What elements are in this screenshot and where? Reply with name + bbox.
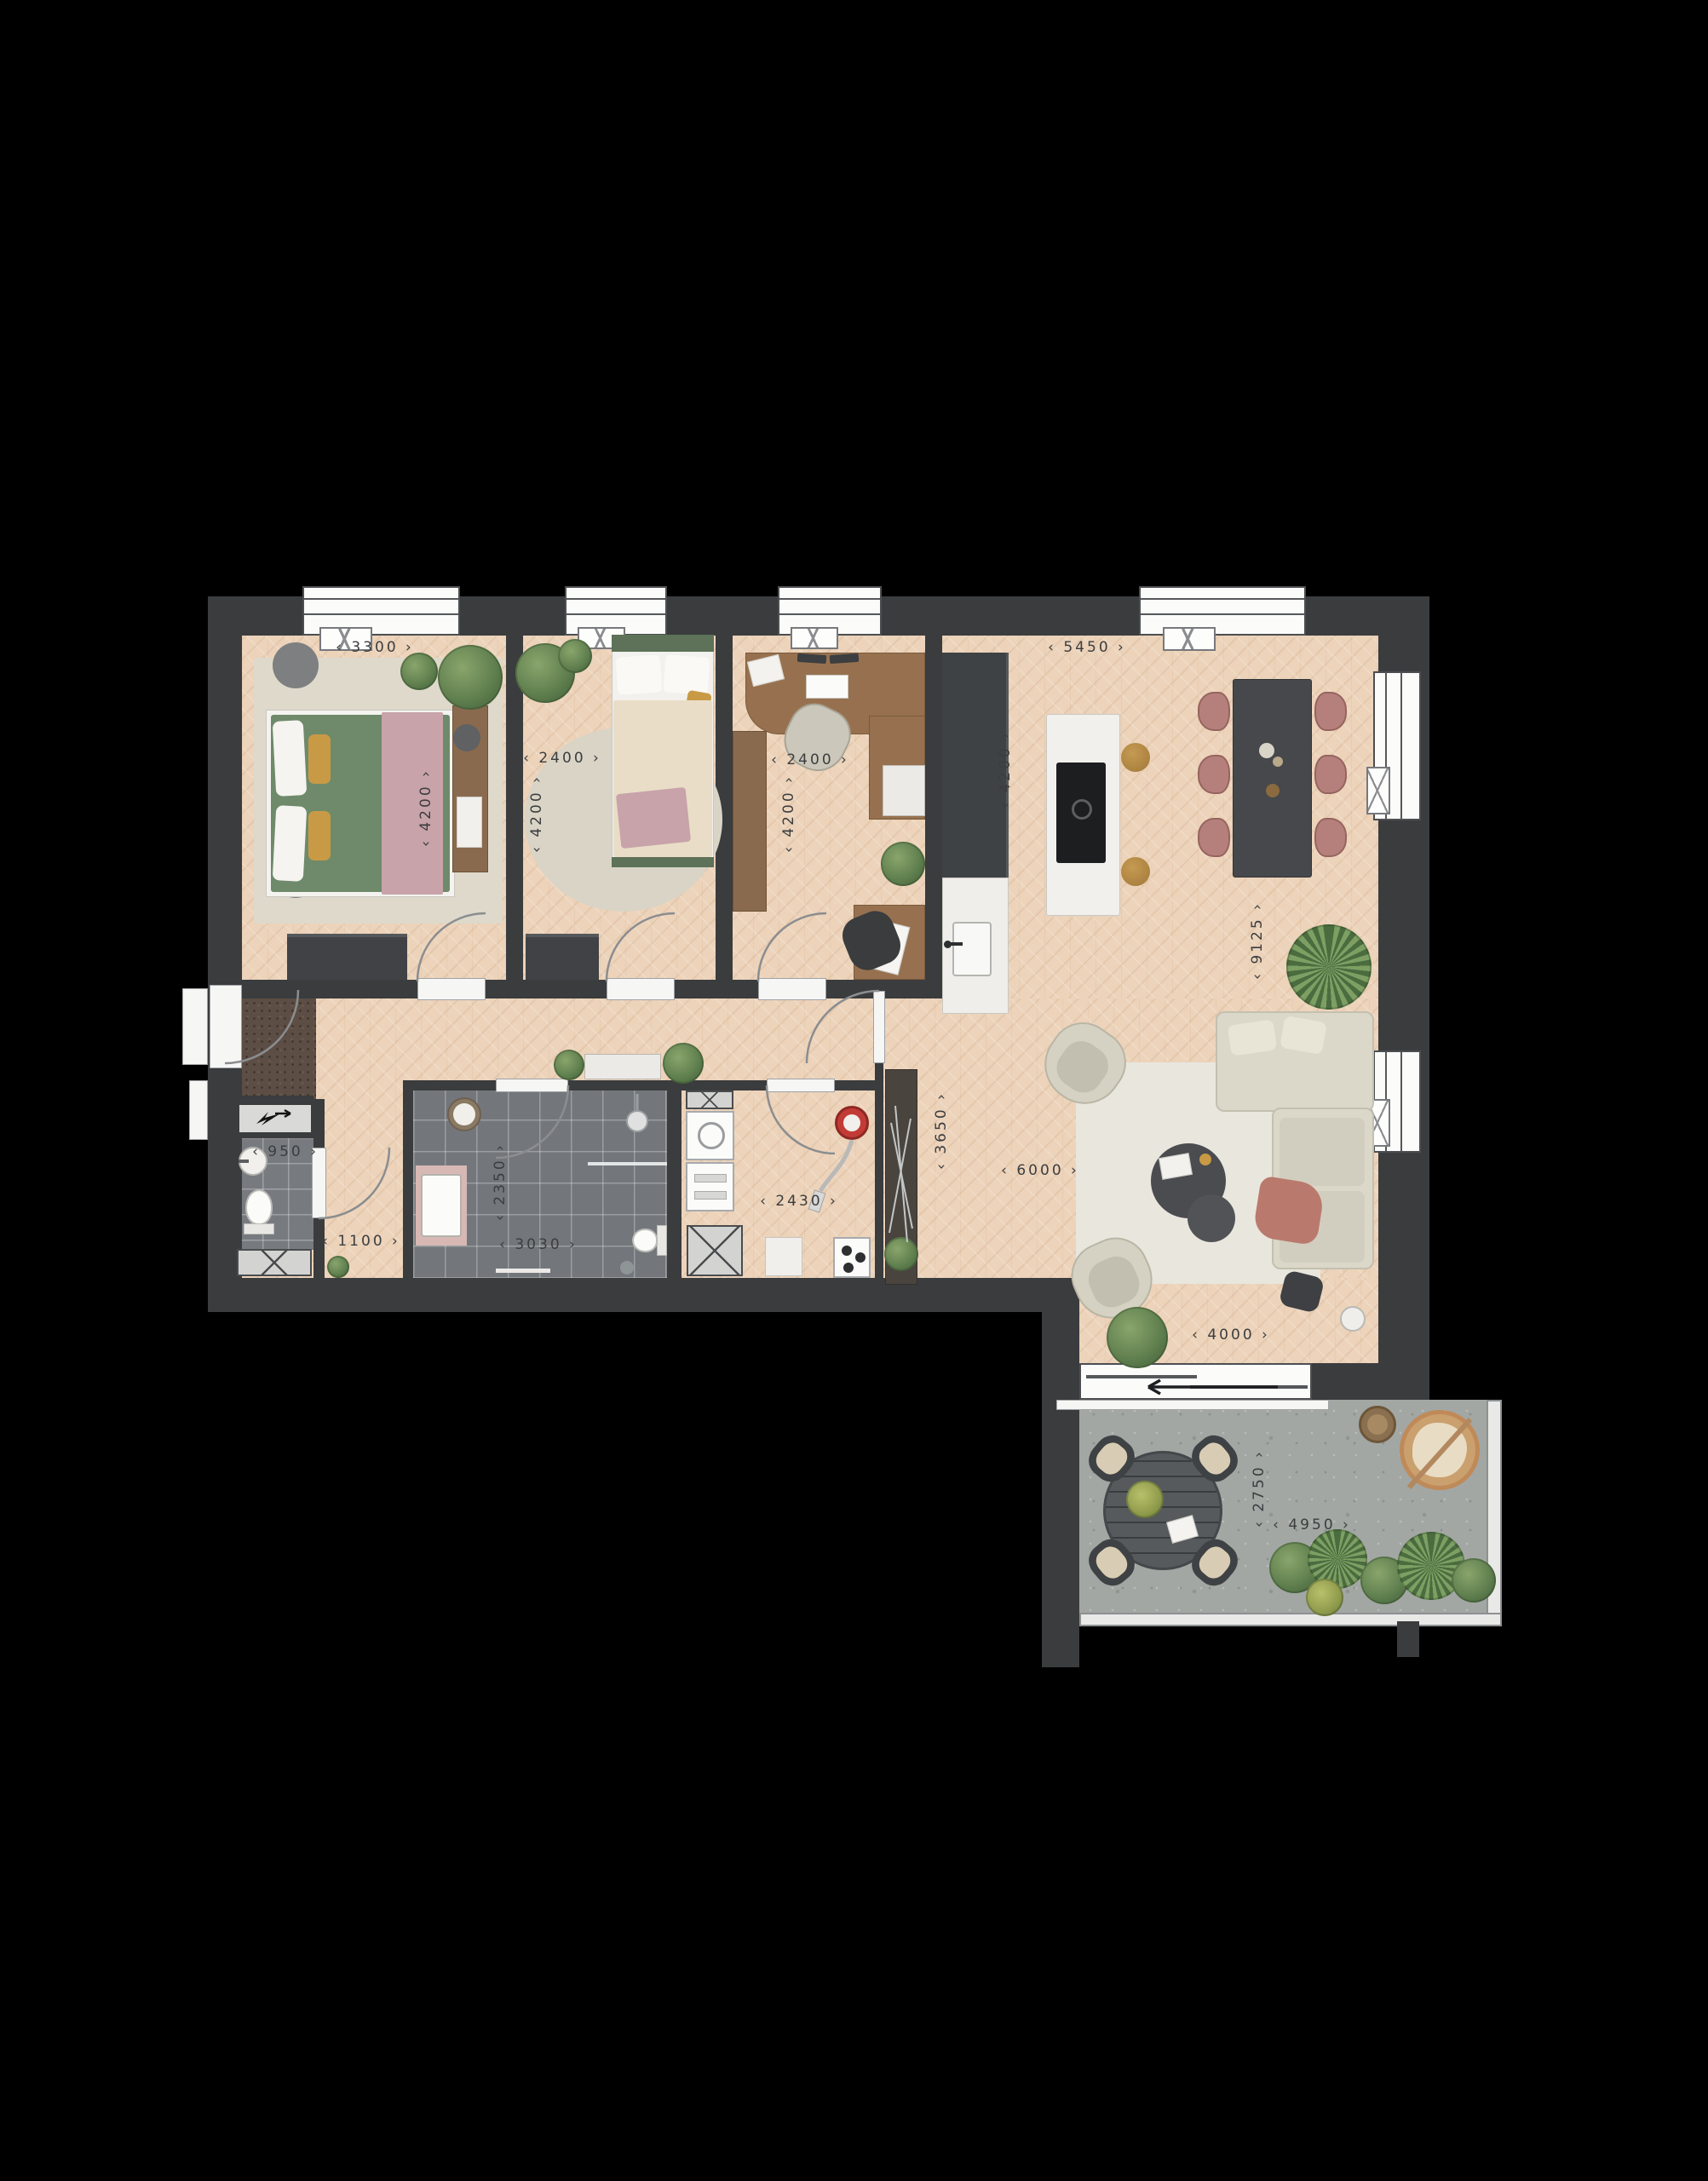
dimension-toilet-width: ‹ 950 › <box>252 1143 319 1160</box>
dimension-entry-passage: ‹ 1100 › <box>322 1233 400 1250</box>
dimension-bedroom1-width: ‹ 3300 › <box>336 639 414 656</box>
dimension-bedroom2-width: ‹ 2400 › <box>523 750 601 767</box>
floor-plan-canvas: ‹ 3300 ›‹ 4200 ›‹ 2400 ›‹ 4200 ›‹ 2400 ›… <box>0 0 1708 2181</box>
dimension-bedroom1-depth: ‹ 4200 › <box>417 768 434 847</box>
dimension-terrace-depth: ‹ 2750 › <box>1251 1449 1268 1528</box>
dimension-labels: ‹ 3300 ›‹ 4200 ›‹ 2400 ›‹ 4200 ›‹ 2400 ›… <box>0 0 1708 2181</box>
dimension-hall-depth: ‹ 3650 › <box>933 1091 950 1170</box>
dimension-living-height: ‹ 9125 › <box>1249 901 1266 980</box>
dimension-study-depth: ‹ 4200 › <box>780 774 797 853</box>
dimension-bedroom2-depth: ‹ 4200 › <box>528 774 545 853</box>
dimension-kitchen-width: ‹ 5450 › <box>1048 639 1126 656</box>
dimension-bathroom-depth: ‹ 2350 › <box>492 1142 509 1221</box>
dimension-study-width: ‹ 2400 › <box>771 751 849 768</box>
dimension-kitchen-depth: ‹ 4200 › <box>997 730 1014 809</box>
dimension-living-lower: ‹ 4000 › <box>1192 1326 1270 1344</box>
dimension-storage-width: ‹ 2430 › <box>760 1193 838 1210</box>
dimension-living-width: ‹ 6000 › <box>1001 1162 1079 1179</box>
dimension-bathroom-width: ‹ 3030 › <box>499 1236 578 1253</box>
dimension-terrace-width: ‹ 4950 › <box>1273 1516 1351 1534</box>
